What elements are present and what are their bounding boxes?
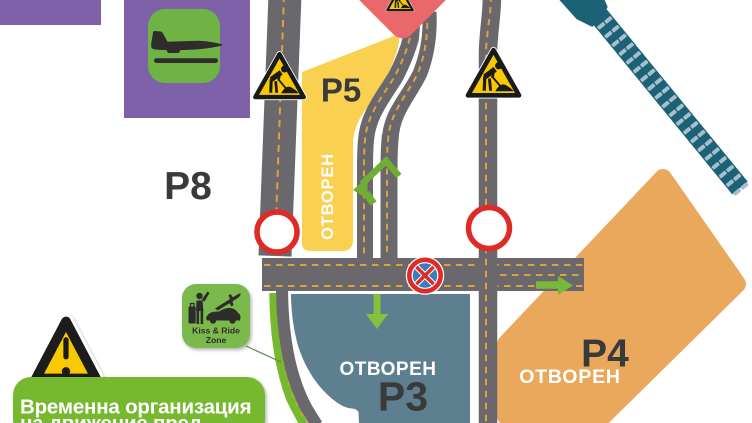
svg-text:P3: P3 (378, 374, 428, 420)
svg-text:P5: P5 (321, 72, 361, 109)
svg-text:ОТВОРЕН: ОТВОРЕН (519, 366, 621, 388)
svg-text:P8: P8 (164, 165, 212, 208)
svg-text:ОТВОРЕН: ОТВОРЕН (319, 153, 337, 240)
svg-text:Kiss & Ride: Kiss & Ride (192, 326, 240, 336)
svg-text:Zone: Zone (206, 335, 227, 345)
svg-text:на движение пред: на движение пред (20, 412, 202, 423)
